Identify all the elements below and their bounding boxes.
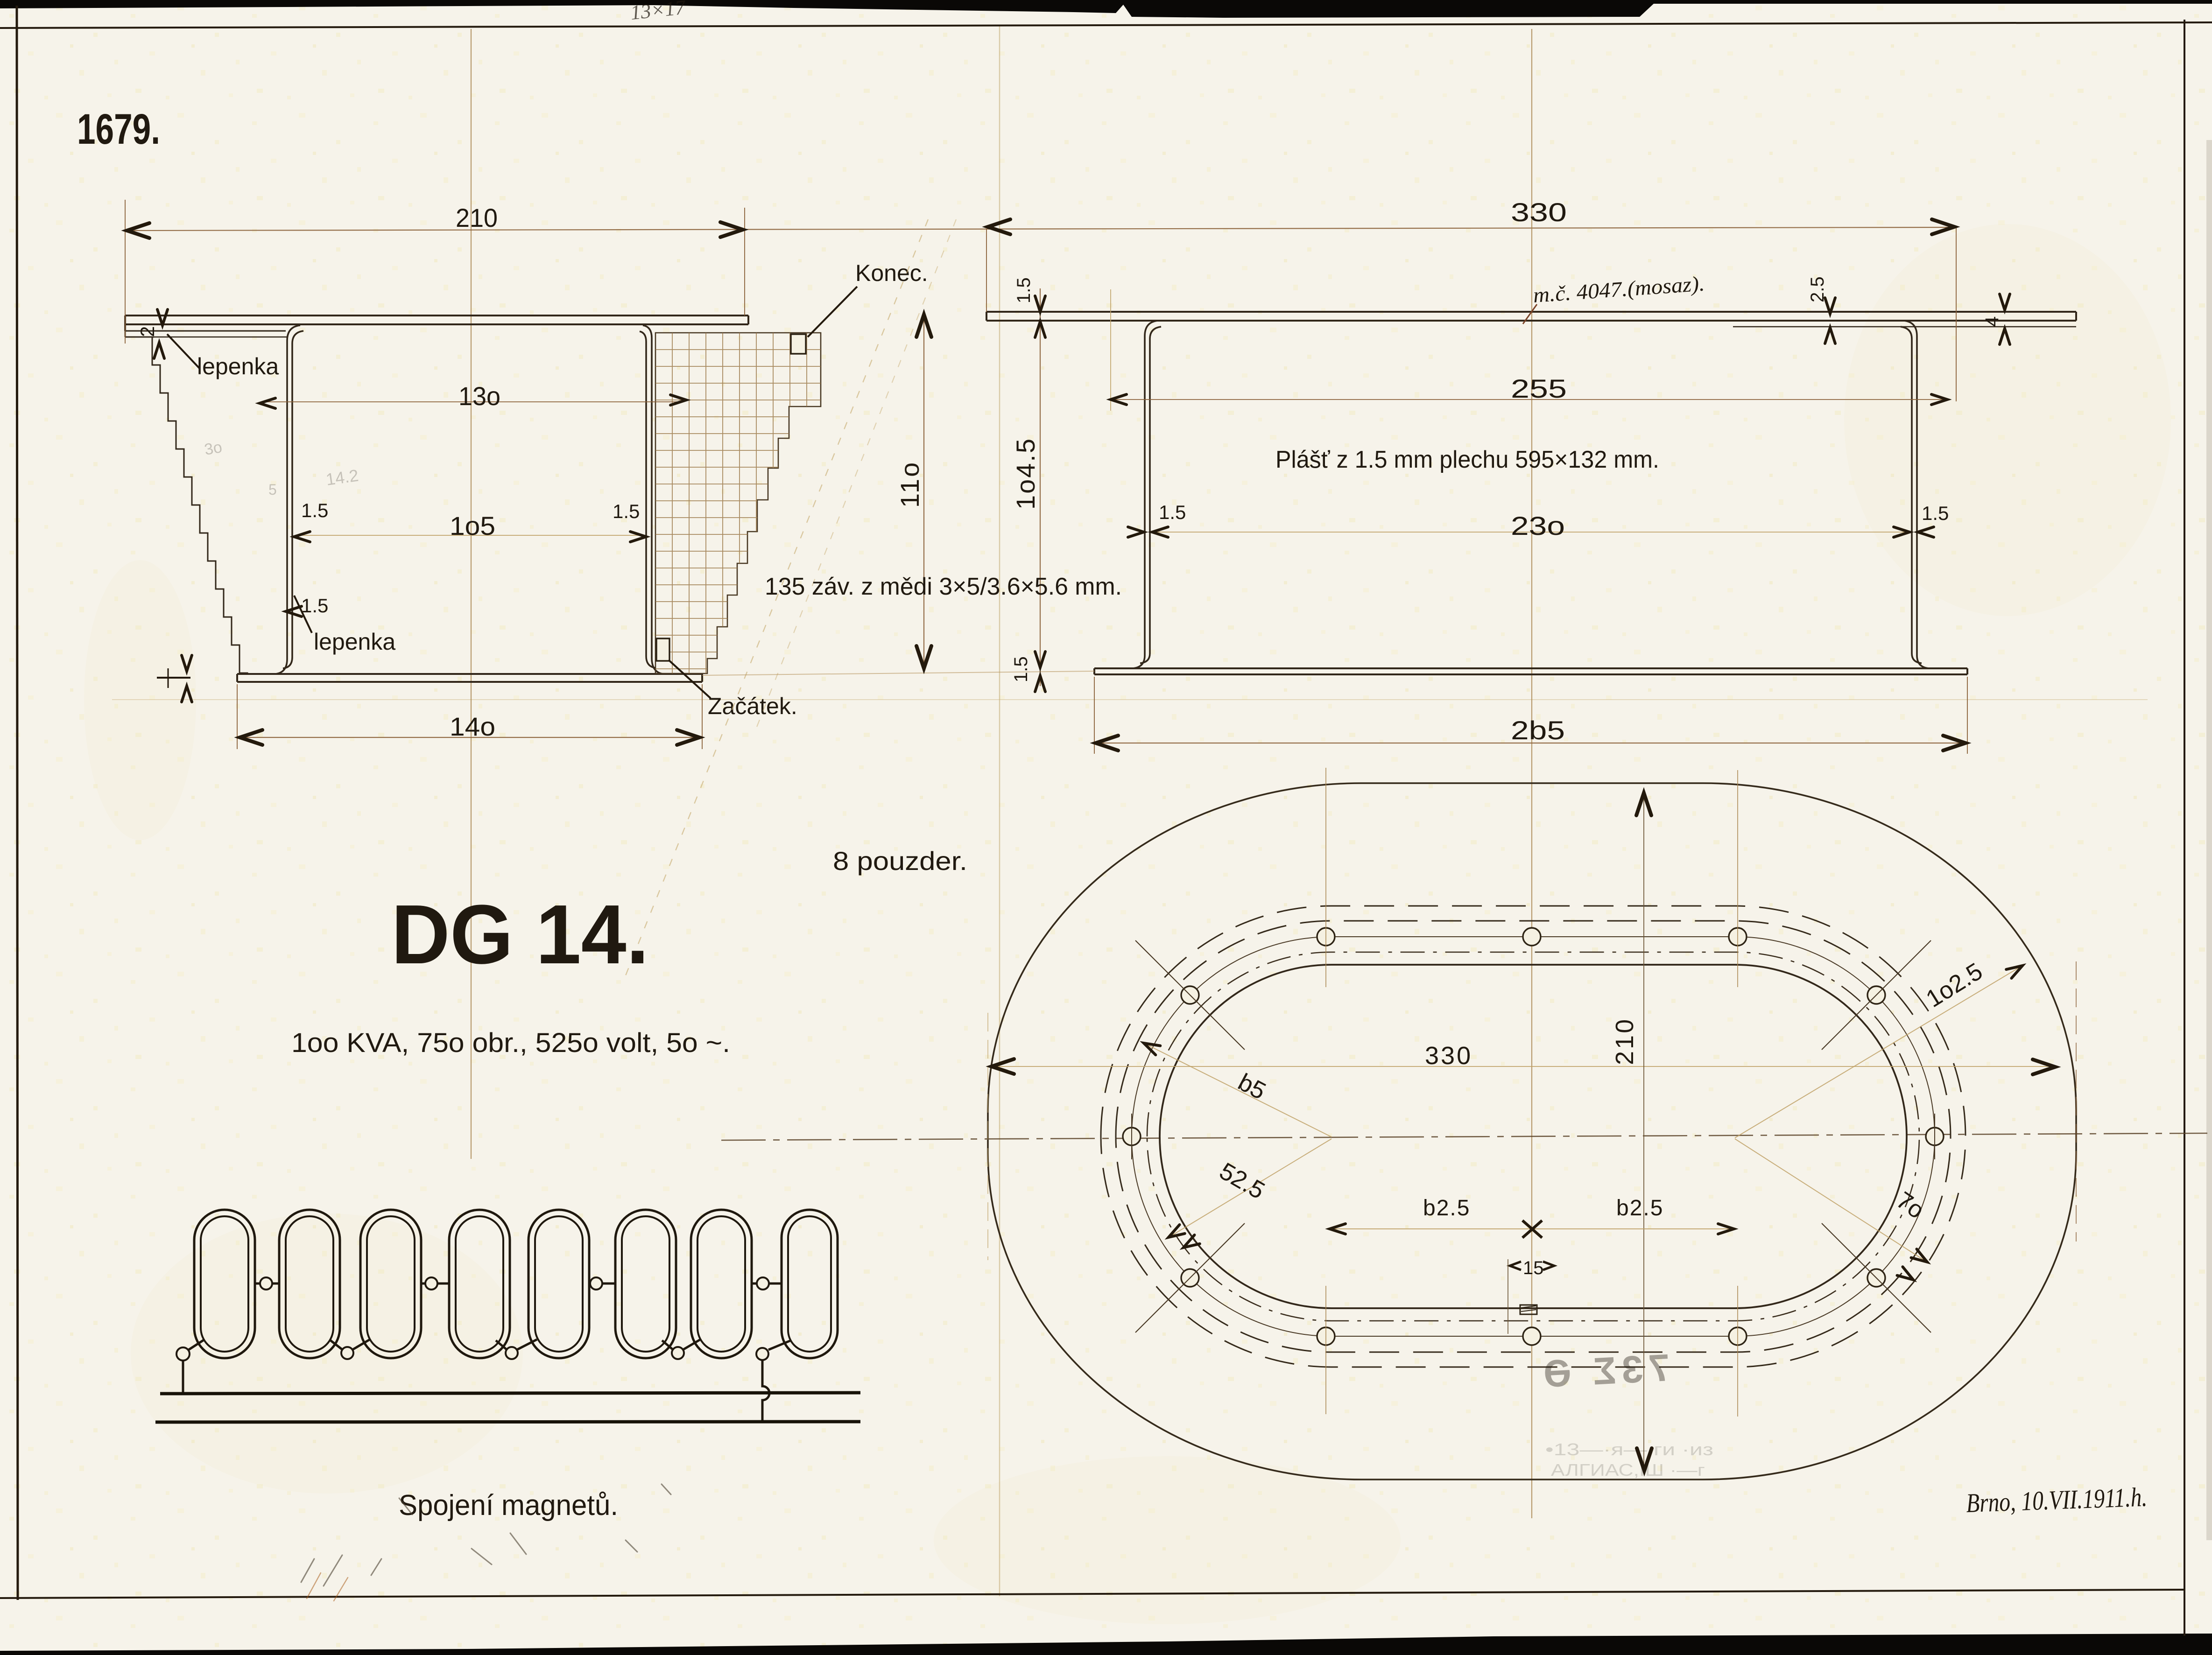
svg-text:15: 15 [1523,1258,1544,1278]
svg-text:lepenka: lepenka [314,629,395,655]
svg-text:Konec.: Konec. [855,260,928,286]
svg-text:11o: 11o [895,461,924,508]
svg-text:255: 255 [1511,374,1567,403]
svg-text:5: 5 [268,481,277,498]
svg-text:1.5: 1.5 [1159,501,1186,523]
svg-text:210: 210 [456,203,498,232]
svg-text:АЛГИАС,ІШ ·—г: АЛГИАС,ІШ ·—г [1551,1460,1705,1480]
svg-text:3o: 3o [203,438,224,459]
svg-text:14o: 14o [450,712,495,741]
svg-text:13o: 13o [458,381,500,411]
svg-text:1679.: 1679. [77,105,160,153]
svg-text:Spojení magnetů.: Spojení magnetů. [399,1489,618,1522]
svg-text:b2.5: b2.5 [1616,1196,1663,1220]
svg-text:Plášť z 1.5 mm plechu 595×132: Plášť z 1.5 mm plechu 595×132 mm. [1275,446,1659,473]
svg-text:1.5: 1.5 [1011,656,1031,682]
svg-text:DG 14.: DG 14. [391,888,649,982]
svg-text:•13—·я— ги ·из: •13—·я— ги ·из [1545,1440,1713,1459]
svg-text:135 záv. z mědi 3×5/3.6×5.6 m: 135 záv. z mědi 3×5/3.6×5.6 mm. [765,573,1122,600]
svg-text:lepenka: lepenka [197,353,279,379]
svg-text:1o4.5: 1o4.5 [1011,437,1040,510]
svg-text:1.5: 1.5 [613,500,640,522]
svg-text:Brno, 10.VII.1911.h.: Brno, 10.VII.1911.h. [1965,1481,2148,1518]
svg-text:330: 330 [1511,197,1567,227]
svg-text:1.5: 1.5 [1014,277,1034,303]
svg-text:4: 4 [1982,316,2002,327]
svg-text:1oo KVA, 75o obr., 525o volt: 1oo KVA, 75o obr., 525o volt, 5o ~. [291,1028,730,1058]
svg-text:23o: 23o [1511,511,1565,540]
svg-text:2b5: 2b5 [1511,715,1565,745]
svg-text:73Ʃ Ə: 73Ʃ Ə [1537,1346,1671,1396]
svg-text:330: 330 [1425,1042,1472,1070]
svg-text:1.5: 1.5 [301,499,328,521]
svg-text:210: 210 [1611,1017,1639,1065]
svg-text:b2.5: b2.5 [1423,1196,1470,1220]
svg-text:8 pouzder.: 8 pouzder. [833,846,967,876]
svg-text:2: 2 [136,326,158,337]
svg-text:1.5: 1.5 [1922,502,1949,524]
svg-text:1o5: 1o5 [450,511,495,540]
svg-text:1.5: 1.5 [301,595,328,617]
svg-text:Začátek.: Začátek. [708,693,797,719]
